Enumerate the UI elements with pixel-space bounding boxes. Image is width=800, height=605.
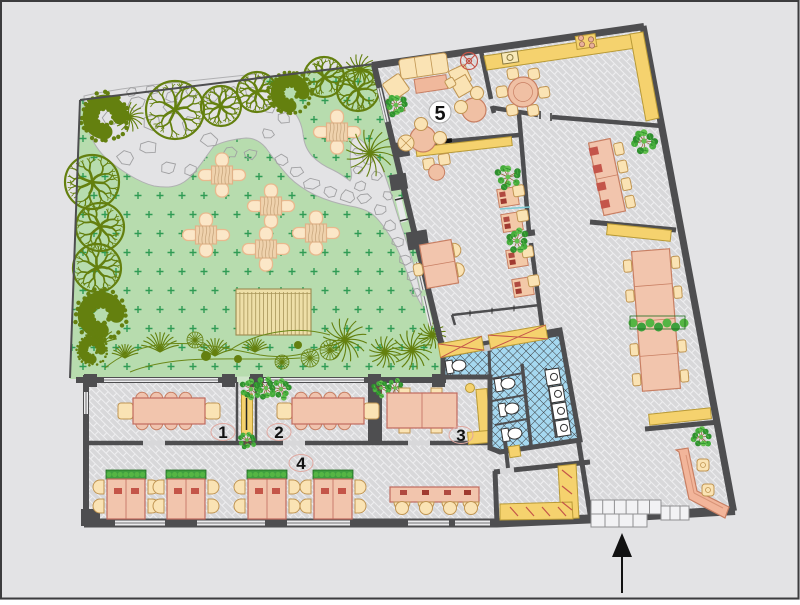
- svg-text:3: 3: [456, 426, 465, 445]
- svg-text:1: 1: [218, 423, 227, 442]
- svg-text:5: 5: [434, 103, 445, 125]
- svg-text:2: 2: [274, 423, 283, 442]
- svg-text:4: 4: [296, 454, 306, 473]
